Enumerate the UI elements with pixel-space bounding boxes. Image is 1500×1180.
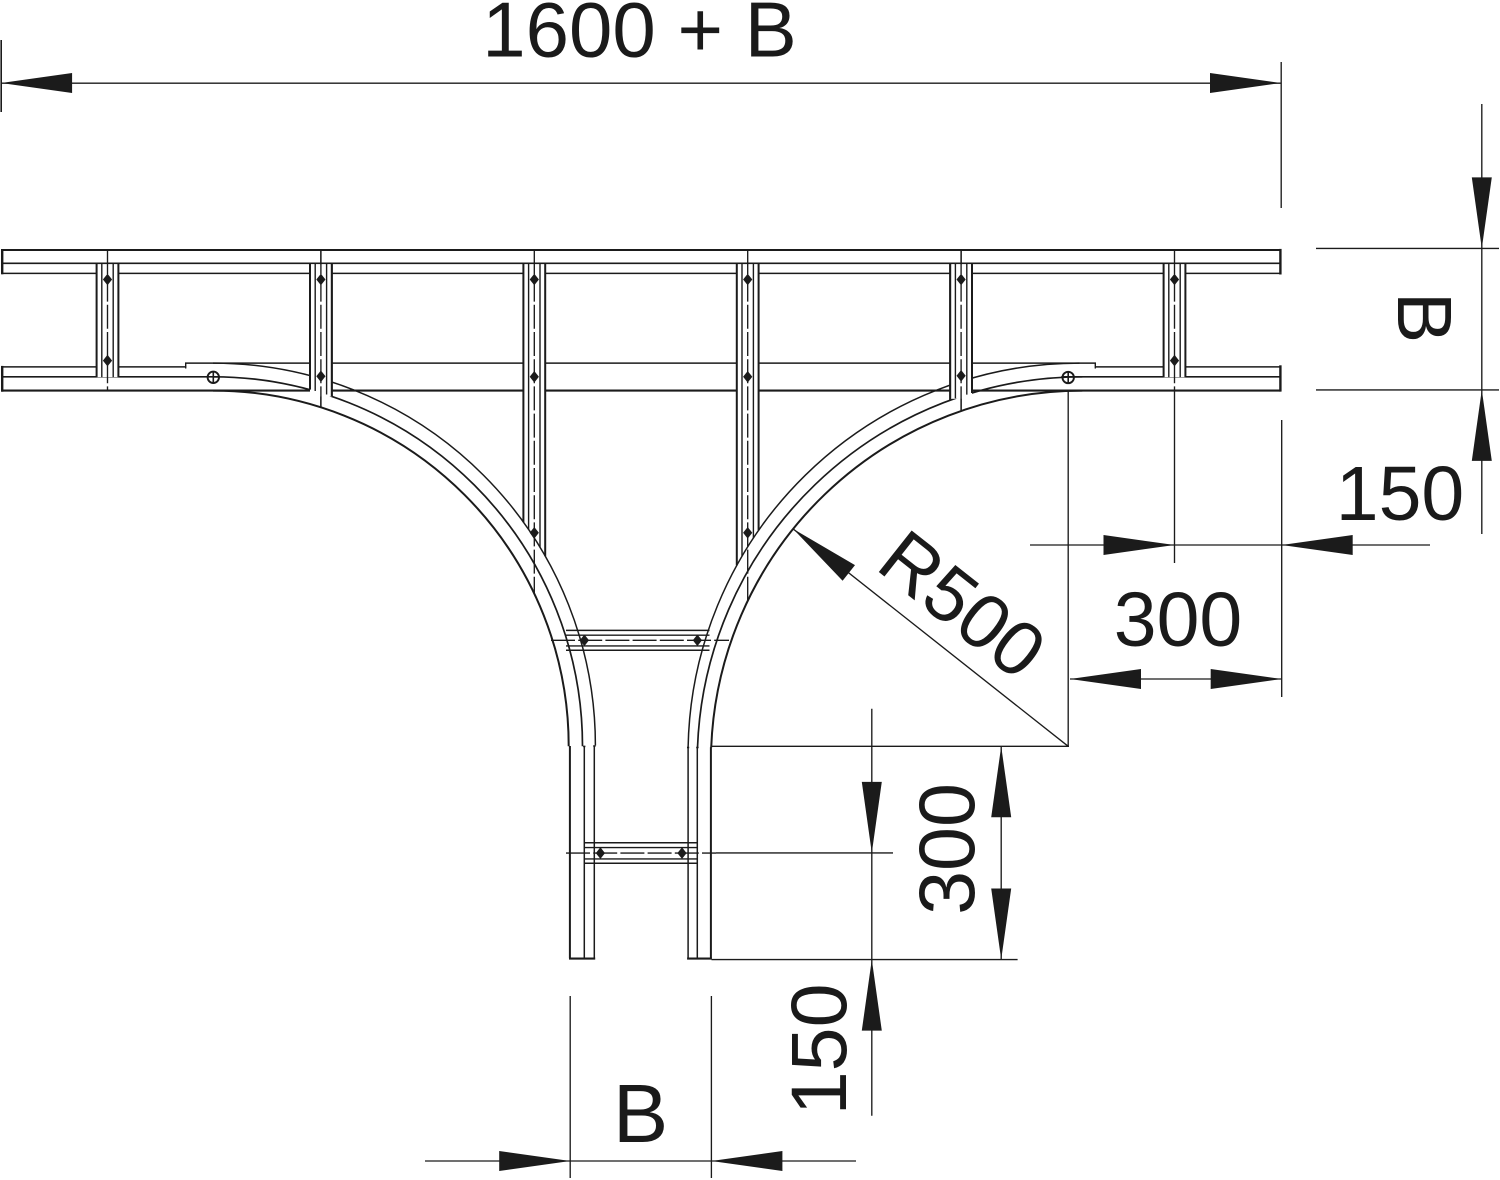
- svg-text:300: 300: [902, 783, 991, 915]
- svg-text:150: 150: [1336, 451, 1464, 537]
- svg-text:1600 + B: 1600 + B: [482, 0, 796, 74]
- svg-text:150: 150: [774, 983, 863, 1115]
- svg-text:B: B: [613, 1067, 668, 1160]
- svg-text:B: B: [1381, 292, 1467, 343]
- svg-text:300: 300: [1114, 577, 1242, 663]
